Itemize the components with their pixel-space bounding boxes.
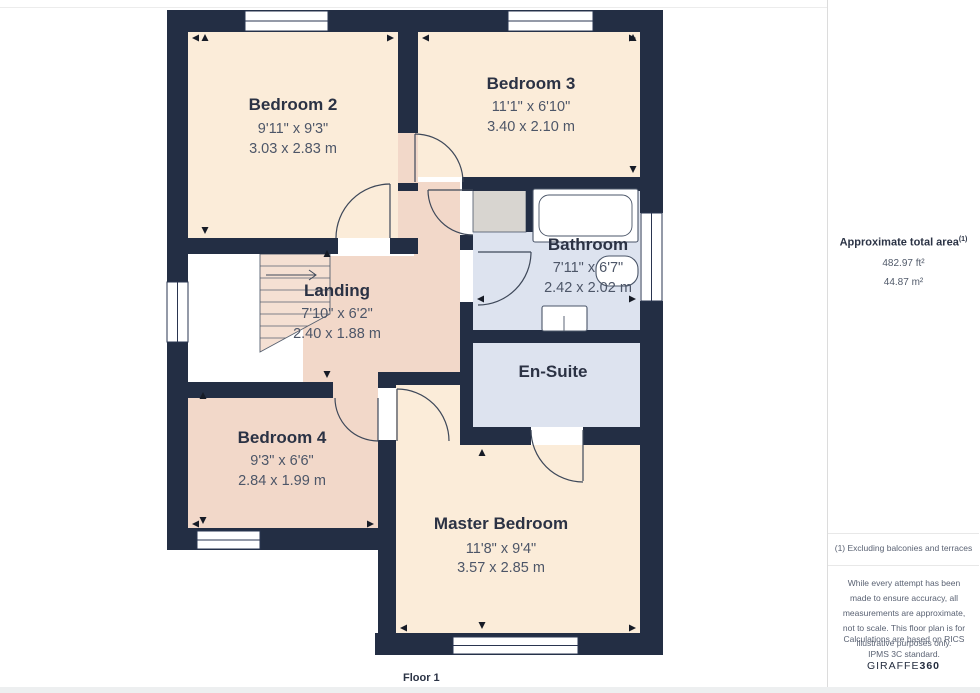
master-dims-m: 3.57 x 2.85 m (457, 560, 545, 576)
landing-dims-m: 2.40 x 1.88 m (293, 326, 381, 342)
wall-bed2-bottom-right (390, 238, 418, 254)
window-master (453, 637, 578, 654)
page-bottom-strip (0, 687, 980, 693)
ensuite-door-opening (531, 427, 583, 445)
window-bedroom2 (245, 11, 328, 31)
total-area-footnote-marker: (1) (959, 236, 968, 243)
giraffe360-logo: GIRAFFE360 (828, 660, 979, 672)
sidebar-divider-top (828, 533, 979, 534)
bedroom3-dims-m: 3.40 x 2.10 m (487, 119, 575, 135)
wall-right-upper (640, 10, 663, 213)
ensuite-floor (473, 343, 640, 427)
wall-bed2-bed3 (398, 10, 418, 133)
wall-right-lower (640, 301, 663, 633)
bedroom2-door-opening (338, 238, 390, 254)
bathroom-dims-ft: 7'11" x 6'7" (553, 260, 623, 276)
wall-left-lower (167, 342, 188, 550)
bedroom4-dims-ft: 9'3" x 6'6" (250, 453, 313, 469)
master-door-opening (378, 388, 396, 440)
info-sidebar: Approximate total area(1) 482.97 ft² 44.… (827, 0, 979, 687)
wall-stub (398, 183, 418, 191)
wall-landing-master (396, 372, 462, 385)
bedroom3-name: Bedroom 3 (487, 74, 576, 93)
total-area-title: Approximate total area(1) (828, 236, 979, 249)
standard-text: Calculations are based on RICS IPMS 3C s… (836, 632, 972, 662)
master-name: Master Bedroom (434, 514, 568, 533)
window-bedroom4 (197, 531, 260, 549)
ensuite-name: En-Suite (519, 362, 588, 381)
bedroom2-name: Bedroom 2 (249, 95, 338, 114)
brand-suffix: 360 (919, 660, 940, 672)
closet (473, 190, 526, 232)
footnote-text: (1) Excluding balconies and terraces (828, 543, 979, 553)
window-stairwell (167, 282, 188, 342)
bedroom2-dims-ft: 9'11" x 9'3" (258, 121, 328, 137)
bedroom3-dims-ft: 11'1" x 6'10" (492, 99, 570, 115)
total-area-m: 44.87 m² (828, 277, 979, 288)
total-area-ft: 482.97 ft² (828, 258, 979, 269)
master-dims-ft: 11'8" x 9'4" (466, 541, 536, 557)
wall-bed2-bottom-left (167, 238, 338, 254)
bedroom4-name: Bedroom 4 (238, 428, 327, 447)
landing-dims-ft: 7'10" x 6'2" (301, 306, 372, 322)
bedroom4-door-opening (333, 382, 378, 398)
bathroom-name: Bathroom (548, 235, 628, 254)
sidebar-divider-bottom (828, 565, 979, 566)
brand-name: GIRAFFE (867, 660, 920, 672)
bedroom4-dims-m: 2.84 x 1.99 m (238, 473, 326, 489)
bathroom-dims-m: 2.42 x 2.02 m (544, 280, 632, 296)
toilet (542, 306, 587, 331)
window-bedroom3 (508, 11, 593, 31)
bathroom-door-opening (460, 250, 473, 302)
total-area-title-text: Approximate total area (840, 237, 959, 249)
wall-bath-bottom (460, 330, 640, 343)
window-bathroom (641, 213, 662, 301)
bedroom2-dims-m: 3.03 x 2.83 m (249, 141, 337, 157)
floor-label: Floor 1 (403, 672, 440, 684)
landing-name: Landing (304, 281, 370, 300)
landing-floor-upper (414, 182, 460, 256)
wall-bed4-top (167, 382, 333, 398)
